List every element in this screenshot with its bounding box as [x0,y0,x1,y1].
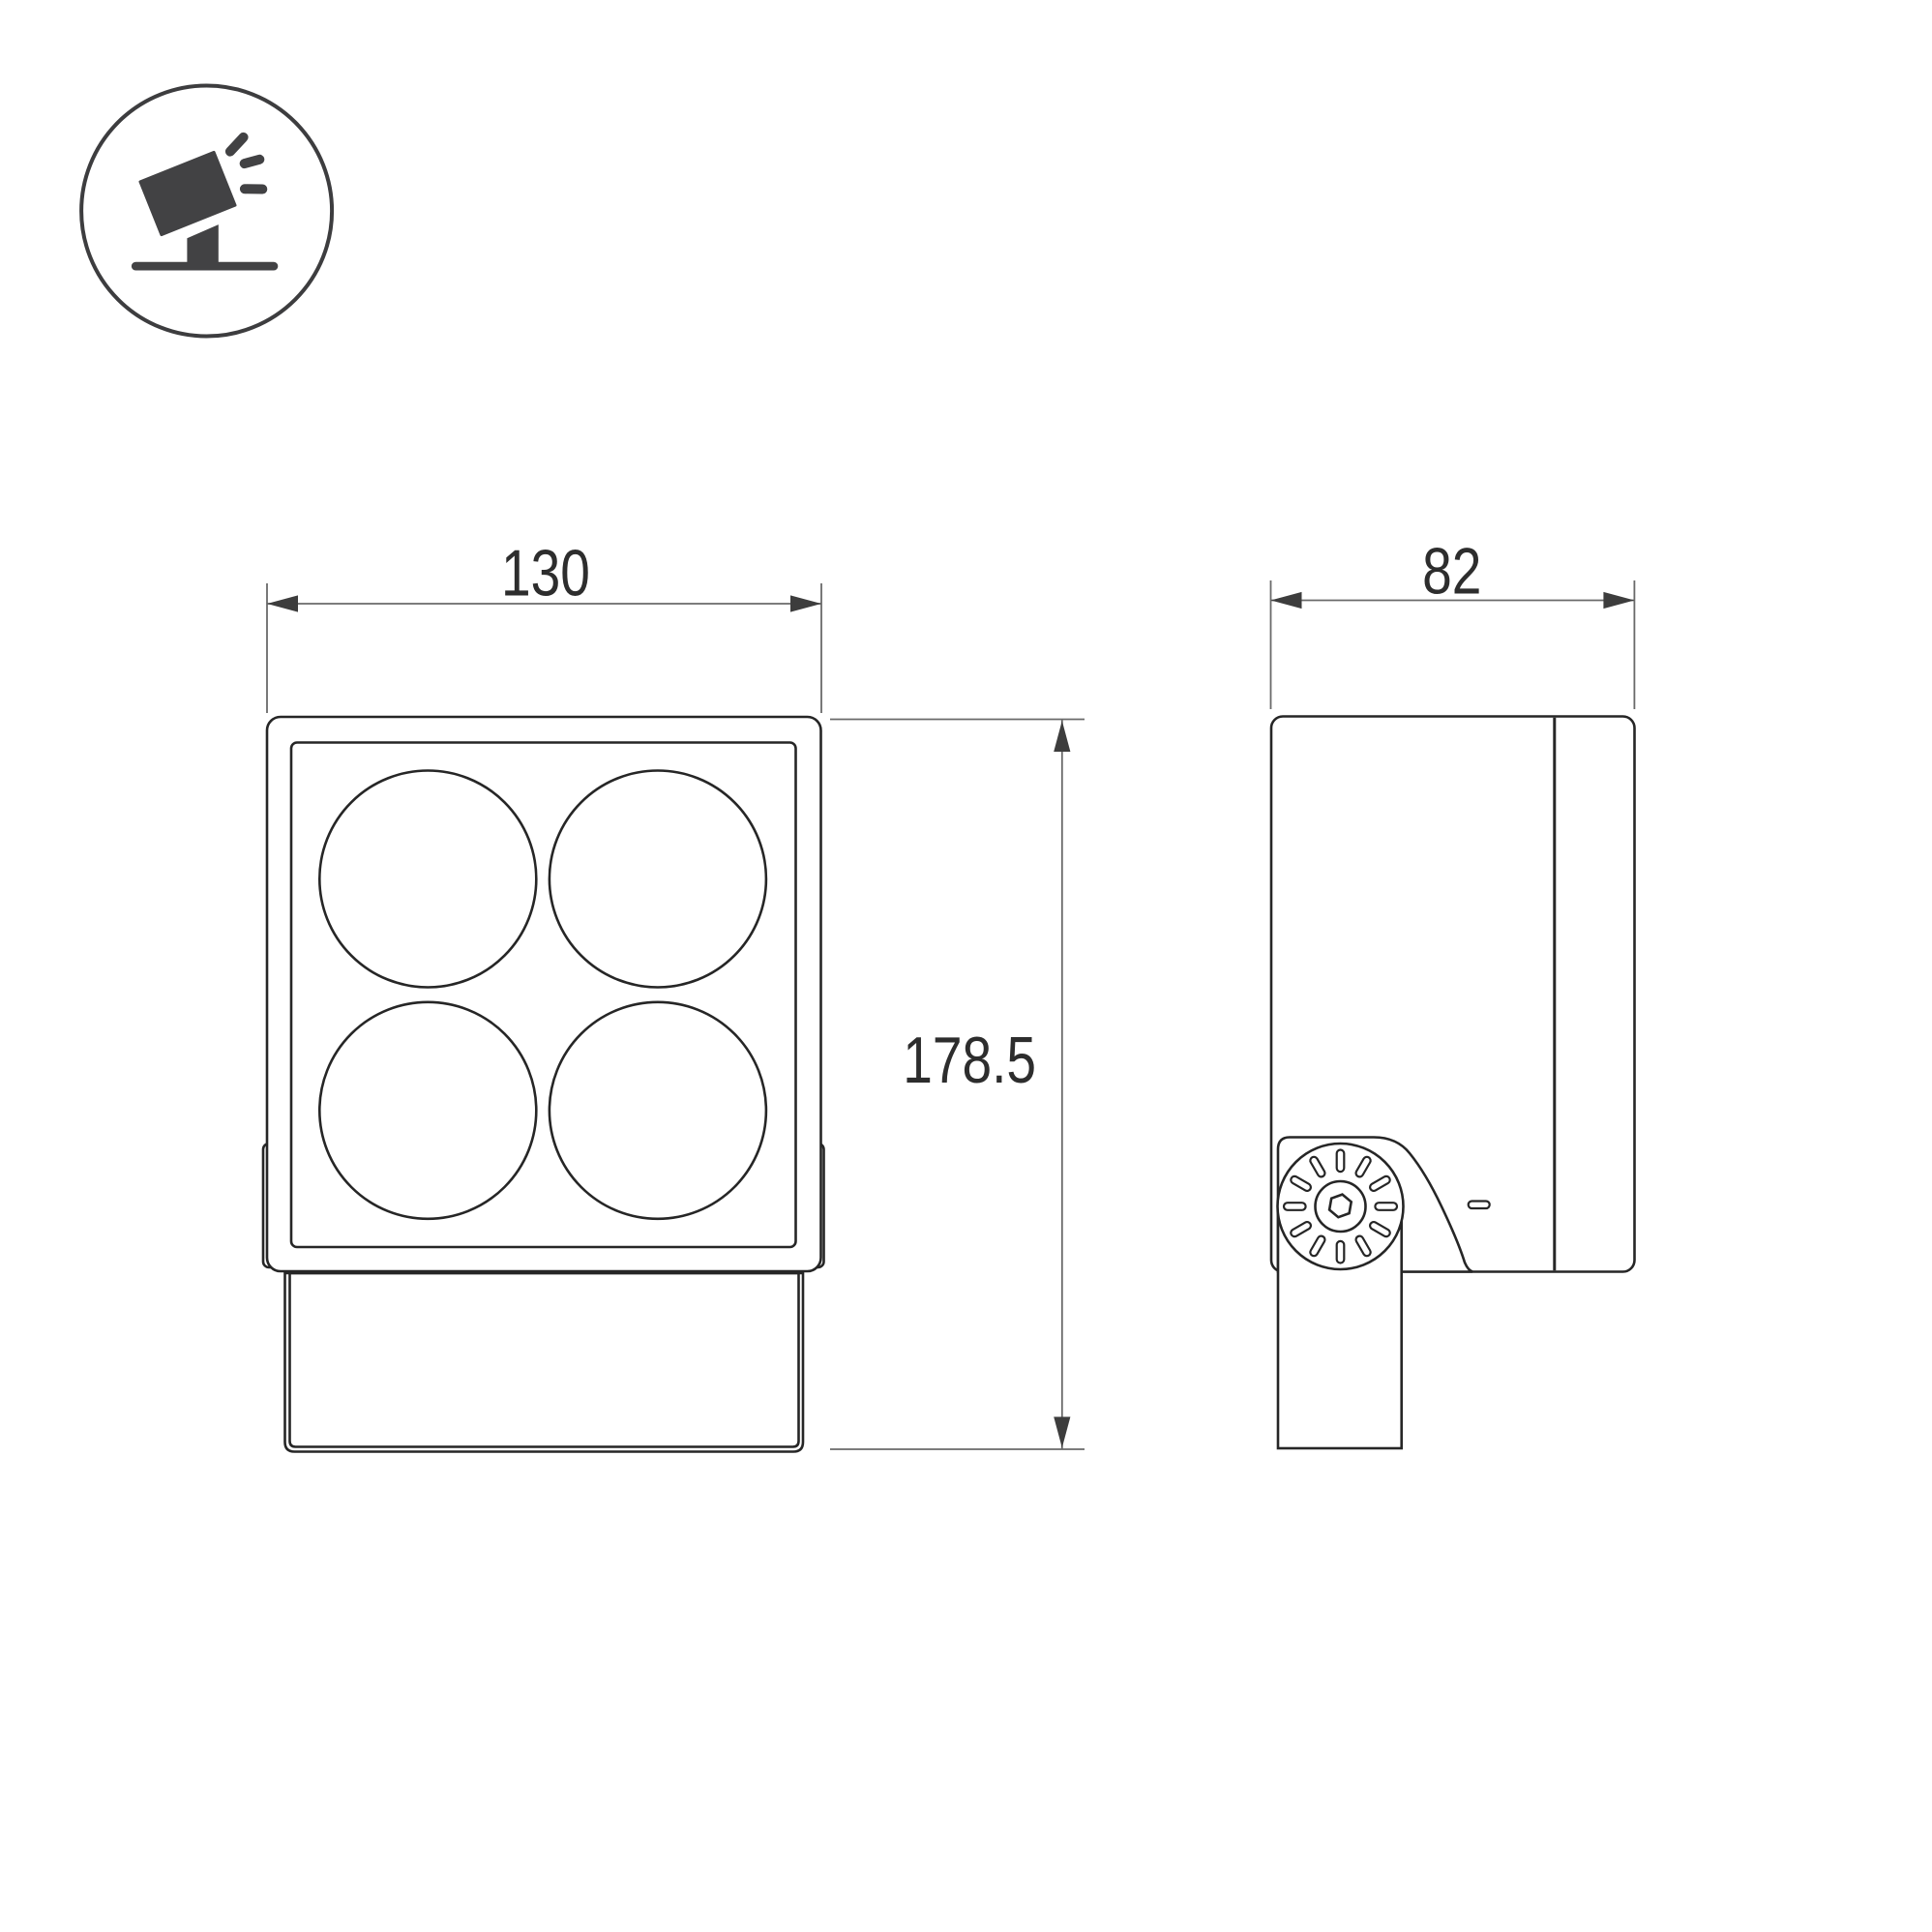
svg-text:82: 82 [1422,535,1481,609]
svg-text:178.5: 178.5 [903,1025,1036,1098]
svg-text:130: 130 [501,537,590,610]
